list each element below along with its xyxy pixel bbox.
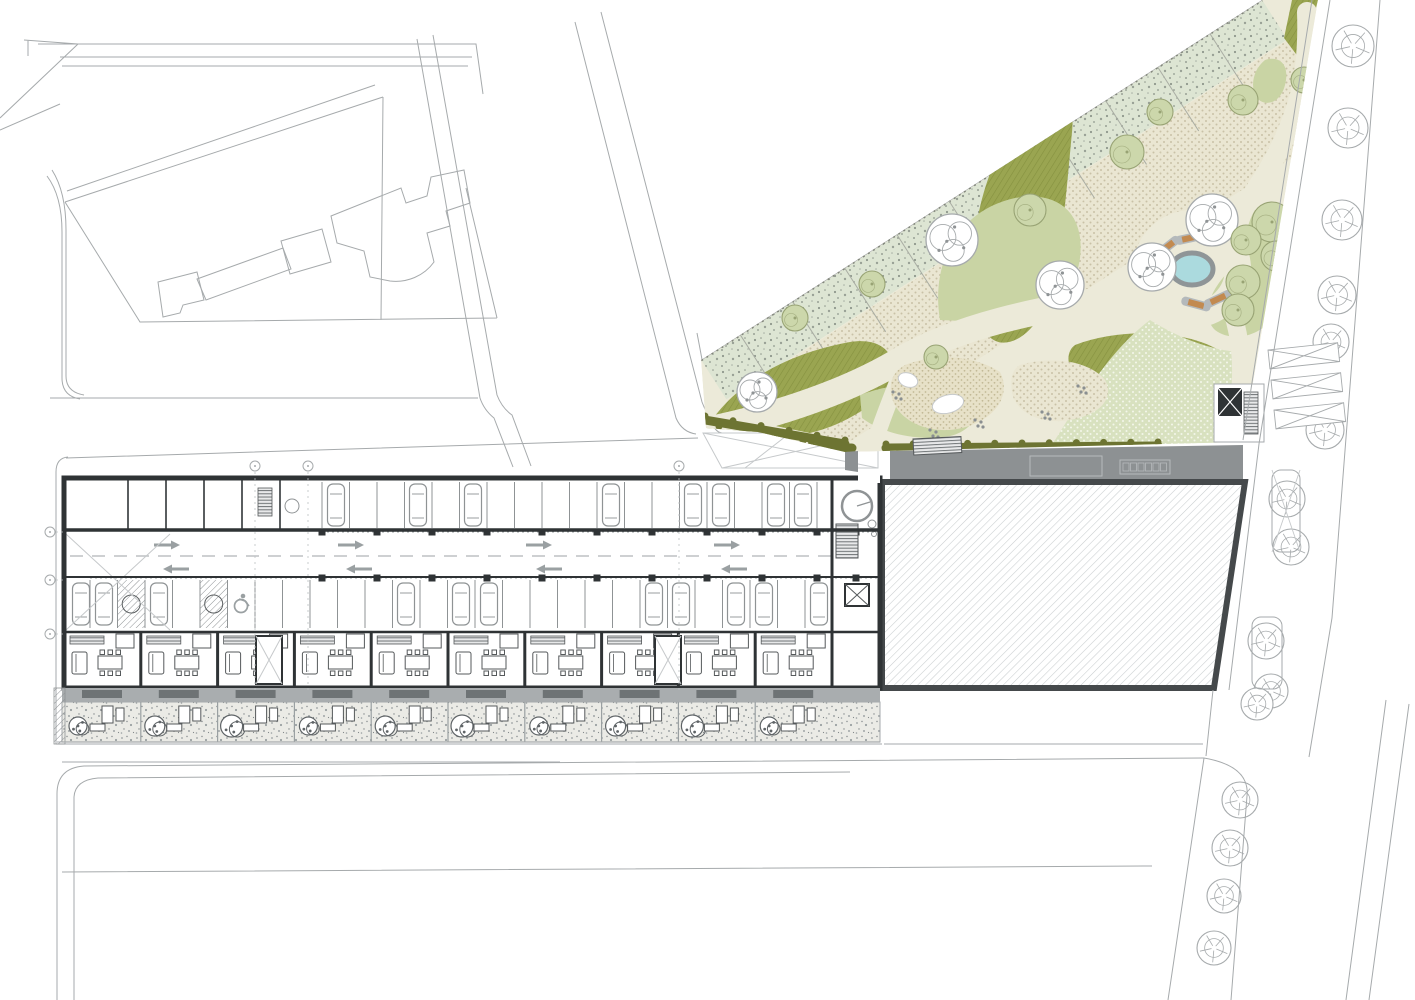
tree-deciduous-icon — [737, 372, 777, 412]
car-icon — [453, 583, 470, 625]
terrace-mat — [620, 690, 660, 698]
hedge — [702, 413, 709, 420]
bathroom — [500, 634, 518, 648]
pedestrian-crossing — [1268, 343, 1340, 369]
kitchen-counter — [300, 636, 334, 644]
bathroom — [346, 634, 364, 648]
hedge — [1019, 440, 1026, 447]
car-icon — [603, 484, 620, 526]
pebbles — [981, 425, 984, 428]
sofa-icon — [686, 652, 701, 674]
terrace-mat — [543, 690, 583, 698]
dining-table-icon — [482, 650, 506, 676]
tree-street-icon — [1222, 782, 1258, 818]
sofa-icon — [379, 652, 394, 674]
tree-deciduous-icon — [1128, 243, 1176, 291]
sofa-icon — [226, 652, 241, 674]
garden-furniture — [577, 708, 585, 721]
tree-deciduous-icon — [1036, 261, 1084, 309]
roof-strip — [845, 451, 858, 472]
hedge — [758, 422, 765, 429]
terrace-mat — [312, 690, 352, 698]
kitchen-counter — [224, 636, 258, 644]
site-plan-page — [0, 0, 1415, 1000]
park-area — [701, 0, 1322, 456]
hedge — [1100, 439, 1107, 446]
stairs-icon — [258, 488, 272, 516]
garden-furniture — [730, 708, 738, 721]
dining-table-icon — [405, 650, 429, 676]
hedge — [808, 441, 815, 448]
future-hall — [882, 482, 1245, 688]
dining-table-icon — [712, 650, 736, 676]
car-icon — [685, 484, 702, 526]
car-icon — [673, 583, 690, 625]
tree-deciduous-icon — [1186, 194, 1238, 246]
tree-deciduous-icon — [924, 345, 948, 369]
residential-building — [64, 474, 880, 688]
sofa-icon — [72, 652, 87, 674]
tree-deciduous-icon — [1261, 241, 1291, 271]
hedge — [786, 427, 793, 434]
pebbles — [976, 424, 979, 427]
pedestrian-crossing — [1271, 373, 1343, 399]
garden-furniture — [486, 706, 497, 723]
pebbles — [979, 420, 982, 423]
hedge — [716, 423, 723, 430]
pebbles — [928, 428, 931, 431]
tree-deciduous-icon — [1014, 194, 1046, 226]
terrace-mat — [773, 690, 813, 698]
hedge — [1073, 439, 1080, 446]
sofa-icon — [533, 652, 548, 674]
tree-deciduous-icon — [782, 305, 808, 331]
hedge — [842, 437, 849, 444]
tree-deciduous-icon — [1228, 85, 1258, 115]
garden-furniture — [500, 708, 508, 721]
dining-table-icon — [559, 650, 583, 676]
bathroom — [730, 634, 748, 648]
pebbles — [1048, 417, 1051, 420]
site-plan-drawing — [0, 0, 1415, 1000]
hedge — [991, 440, 998, 447]
dining-table-icon — [328, 650, 352, 676]
garden-furniture — [409, 706, 420, 723]
garage-ramp-grille — [913, 436, 962, 454]
tree-deciduous-icon — [1226, 265, 1260, 299]
car-icon — [811, 583, 828, 625]
car-icon — [328, 484, 345, 526]
garden-furniture — [551, 724, 566, 731]
bathroom — [116, 634, 134, 648]
pebbles — [891, 390, 894, 393]
tree-street-icon — [1248, 623, 1284, 659]
grid-bubble — [45, 575, 55, 585]
car-icon — [795, 484, 812, 526]
kitchen-counter — [70, 636, 104, 644]
car-icon — [465, 484, 482, 526]
pebbles — [934, 430, 937, 433]
pebbles — [931, 434, 934, 437]
garden-furniture — [346, 708, 354, 721]
pebbles — [897, 392, 900, 395]
garden-furniture — [716, 706, 727, 723]
terrace-mat — [82, 690, 122, 698]
bathroom — [807, 634, 825, 648]
car-icon — [398, 583, 415, 625]
garden-furniture — [474, 724, 489, 731]
garden-furniture — [332, 706, 343, 723]
tree-deciduous-icon — [1110, 135, 1144, 169]
pebbles — [973, 418, 976, 421]
car-icon — [756, 583, 773, 625]
hedge — [964, 440, 971, 447]
car-icon — [713, 484, 730, 526]
garden-furniture — [193, 708, 201, 721]
grid-bubble — [45, 527, 55, 537]
garden-furniture — [256, 706, 267, 723]
hedge — [835, 441, 842, 448]
pebbles — [1079, 390, 1082, 393]
hedge — [772, 433, 779, 440]
car-icon — [151, 583, 168, 625]
grid-bubble — [303, 461, 313, 471]
retaining-wall — [54, 688, 65, 744]
terrace-mat — [466, 690, 506, 698]
garden-furniture — [397, 724, 412, 731]
terrace-mat — [159, 690, 199, 698]
tree-street-icon — [1328, 108, 1368, 148]
tree-street-icon — [1197, 931, 1231, 965]
grid-bubble — [674, 461, 684, 471]
hedge — [744, 428, 751, 435]
garden-furniture — [270, 708, 278, 721]
kitchen-counter — [377, 636, 411, 644]
tree-street-icon — [1318, 276, 1356, 314]
entrance-door-gap — [858, 474, 880, 483]
car-icon — [481, 583, 498, 625]
pebbles — [1043, 416, 1046, 419]
hedge — [800, 437, 807, 444]
terrace-mat — [696, 690, 736, 698]
kitchen-counter — [454, 636, 488, 644]
garden-furniture — [640, 706, 651, 723]
kitchen-counter — [147, 636, 181, 644]
tree-deciduous-icon — [1147, 99, 1173, 125]
sofa-icon — [610, 652, 625, 674]
hedge — [781, 441, 788, 448]
bathroom — [577, 634, 595, 648]
private-gardens — [54, 688, 880, 744]
pebbles — [1076, 384, 1079, 387]
tree-deciduous-icon — [1231, 225, 1261, 255]
bathroom — [423, 634, 441, 648]
grid-bubble — [45, 629, 55, 639]
sofa-icon — [302, 652, 317, 674]
garden-furniture — [116, 708, 124, 721]
garden-furniture — [90, 724, 105, 731]
hedge — [814, 432, 821, 439]
tree-street-icon — [1322, 200, 1362, 240]
garden-furniture — [807, 708, 815, 721]
bathroom — [193, 634, 211, 648]
hatched-stall — [200, 580, 228, 628]
garden-furniture — [628, 724, 643, 731]
garden-furniture — [563, 706, 574, 723]
kitchen-counter — [608, 636, 642, 644]
park-service-corner — [1214, 384, 1264, 442]
stairs-icon — [1244, 392, 1258, 434]
tree-street-icon — [1332, 25, 1374, 67]
car-icon — [646, 583, 663, 625]
tree-street-icon — [1241, 688, 1273, 720]
tree-deciduous-icon — [859, 271, 885, 297]
dining-table-icon — [175, 650, 199, 676]
garden-furniture — [179, 706, 190, 723]
garden-furniture — [793, 706, 804, 723]
sofa-icon — [149, 652, 164, 674]
tree-deciduous-icon — [1291, 67, 1317, 93]
garden-furniture — [654, 708, 662, 721]
tree-deciduous-icon — [926, 214, 978, 266]
hedge — [1155, 439, 1162, 446]
grid-bubble — [250, 461, 260, 471]
pebbles — [899, 397, 902, 400]
garden-furniture — [781, 724, 796, 731]
garden-furniture — [167, 724, 182, 731]
pebbles — [1084, 391, 1087, 394]
hedge — [730, 417, 737, 424]
garden-furniture — [704, 724, 719, 731]
tree-deciduous-icon — [1222, 294, 1254, 326]
terrace-mat — [389, 690, 429, 698]
pebbles — [894, 396, 897, 399]
hedge — [821, 449, 828, 456]
tree-deciduous-icon — [792, 226, 840, 274]
dining-table-icon — [789, 650, 813, 676]
terrace-mat — [236, 690, 276, 698]
hedge — [1046, 439, 1053, 446]
garden-furniture — [320, 724, 335, 731]
car-icon — [410, 484, 427, 526]
car-icon — [73, 583, 90, 625]
tree-street-icon — [1207, 879, 1241, 913]
dining-table-icon — [98, 650, 122, 676]
sofa-icon — [763, 652, 778, 674]
garden-furniture — [102, 706, 113, 723]
car-icon — [768, 484, 785, 526]
pebbles — [1082, 386, 1085, 389]
garden-furniture — [244, 724, 259, 731]
future-hall-hatched — [882, 482, 1245, 688]
hedge — [883, 441, 890, 448]
pebbles — [1040, 410, 1043, 413]
garden-furniture — [423, 708, 431, 721]
kitchen-counter — [531, 636, 565, 644]
pebbles — [1046, 412, 1049, 415]
kitchen-counter — [761, 636, 795, 644]
neighbor-building-footprint — [158, 170, 470, 317]
car-icon — [728, 583, 745, 625]
kitchen-counter — [684, 636, 718, 644]
pond-icon — [1171, 253, 1213, 285]
hatched-stall — [118, 580, 146, 628]
sofa-icon — [456, 652, 471, 674]
hedge — [1127, 439, 1134, 446]
